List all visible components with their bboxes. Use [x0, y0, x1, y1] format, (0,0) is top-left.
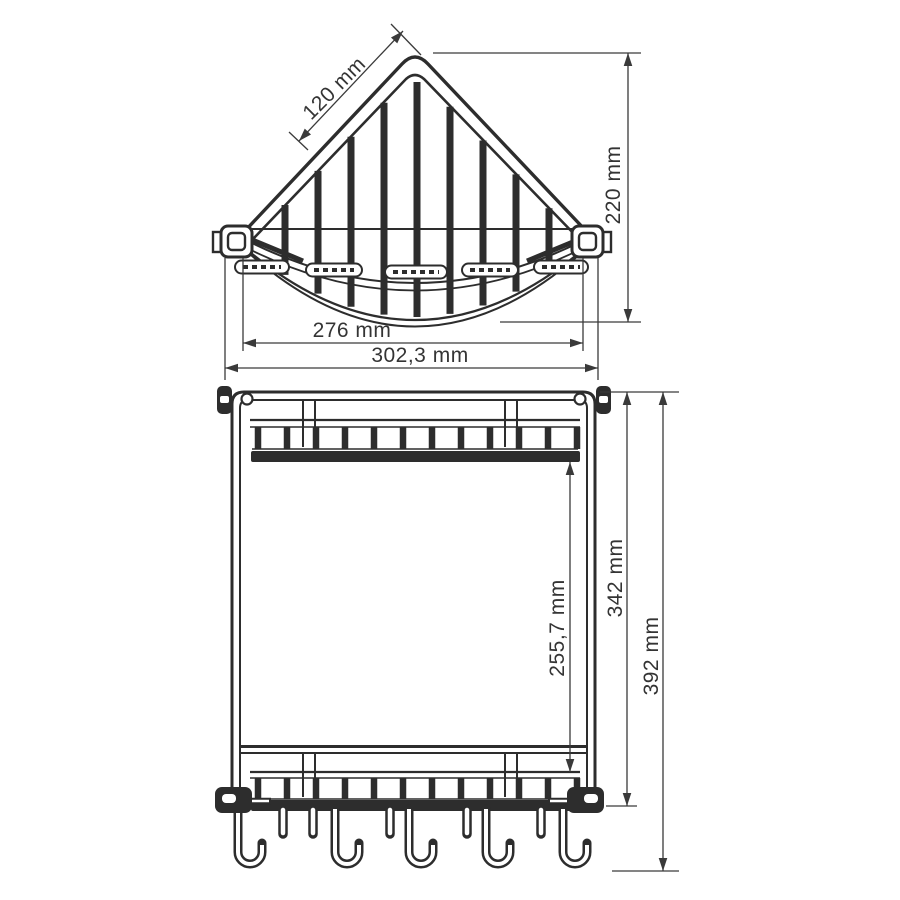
mounting-plates — [235, 261, 588, 279]
dimension-arrowhead — [659, 392, 668, 405]
front-view: 255,7 mm 342 mm 392 mm — [215, 386, 679, 871]
dimension-arrowhead — [624, 309, 633, 322]
front-top-left-wall-bracket — [217, 386, 232, 414]
front-top-right-wall-bracket — [596, 386, 611, 414]
bracket-slot — [222, 794, 236, 803]
bracket-slot — [584, 794, 598, 803]
dimension-arrowhead — [243, 339, 256, 348]
dimension-arrowhead — [585, 364, 598, 373]
lower-basket — [240, 747, 587, 812]
left-corner-joint — [242, 394, 253, 405]
dimension-arrowhead — [624, 53, 633, 66]
dim-label-frame-height: 342 mm — [604, 539, 627, 618]
j-hook — [563, 809, 587, 864]
tab-slot — [220, 396, 229, 403]
dim-label-outer-width: 302,3 mm — [371, 344, 468, 367]
dim-label-top-height: 220 mm — [602, 146, 625, 225]
dimension-arrowhead — [566, 759, 575, 772]
j-hook — [238, 809, 262, 864]
technical-drawing: 120 mm 220 mm 276 mm 302,3 mm — [0, 0, 900, 900]
dimension-arrowhead — [623, 793, 632, 806]
dim-label-edge-length: 120 mm — [298, 52, 370, 124]
dimension-frame-height: 342 mm — [600, 392, 679, 806]
top-view-wires — [285, 82, 549, 317]
dim-label-inner-width: 276 mm — [313, 319, 392, 342]
top-view-right-wall-bracket — [572, 226, 611, 257]
dim-label-shelf-clearance: 255,7 mm — [546, 579, 569, 676]
dimension-arrowhead — [566, 462, 575, 475]
dimension-total-height: 392 mm — [612, 392, 679, 871]
hook-row — [238, 809, 587, 864]
tab-slot — [599, 396, 608, 403]
j-hook — [335, 809, 359, 864]
dim-label-total-height: 392 mm — [640, 617, 663, 696]
top-view: 120 mm 220 mm 276 mm 302,3 mm — [213, 24, 641, 380]
upper-basket — [250, 401, 580, 462]
right-corner-joint — [575, 394, 586, 405]
j-hook — [486, 809, 510, 864]
left-bracket-slot — [228, 233, 245, 250]
technical-drawing-page: 120 mm 220 mm 276 mm 302,3 mm — [0, 0, 900, 900]
dimension-arrowhead — [225, 364, 238, 373]
right-bracket-slot — [579, 233, 596, 250]
top-view-left-wall-bracket — [213, 226, 252, 257]
dimension-arrowhead — [623, 392, 632, 405]
dimension-arrowhead — [570, 339, 583, 348]
lower-basket-front-bar — [251, 800, 580, 811]
j-hook — [409, 809, 433, 864]
upper-basket-grid — [258, 427, 577, 449]
lower-basket-grid — [258, 778, 577, 799]
upper-basket-front-bar — [251, 451, 580, 462]
dimension-shelf-clearance: 255,7 mm — [546, 462, 570, 772]
dimension-arrowhead — [659, 858, 668, 871]
